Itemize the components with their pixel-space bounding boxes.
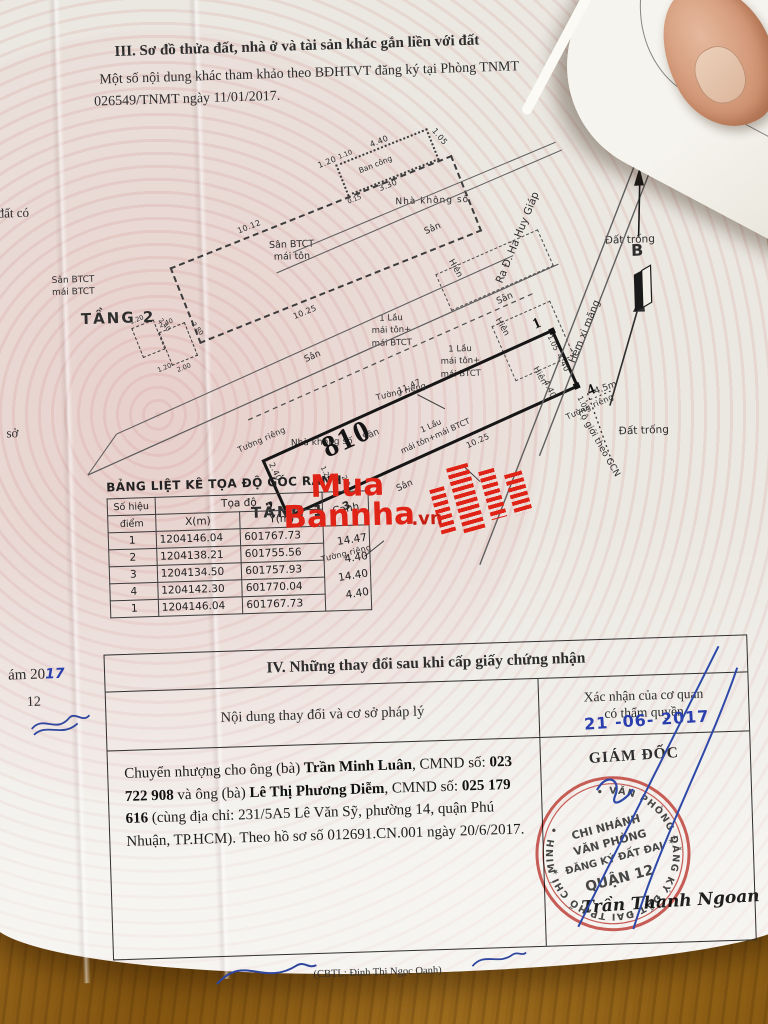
seg: và ông (bà) xyxy=(173,785,249,803)
road-ra-duong-label: Ra Đ. Hà Huy Giáp xyxy=(494,190,542,285)
muabannha-watermark: Mua Bannha .vn xyxy=(282,463,535,561)
photo-of-land-certificate: III. Sơ đồ thửa đất, nhà ở và tài sản kh… xyxy=(0,0,768,1024)
north-label: B xyxy=(631,240,644,259)
lo-gioi-dim: 4.5m xyxy=(593,380,618,397)
section4-table: IV. Những thay đổi sau khi cấp giấy chứn… xyxy=(103,634,756,960)
alley-label: Hẻm xi măng xyxy=(566,298,602,365)
point-id: 2 xyxy=(109,548,157,566)
director-pen-strokes xyxy=(484,637,755,949)
point-id: 1 xyxy=(108,531,156,549)
grantee-name-1: Trần Minh Luân xyxy=(304,757,413,776)
point-id: 3 xyxy=(109,565,157,583)
lo-gioi-label: Lộ giới theo GCN xyxy=(575,408,622,479)
x-value: 1204146.04 xyxy=(158,597,243,617)
point-id: 4 xyxy=(110,582,158,600)
seg: Chuyển nhượng cho ông (bà) xyxy=(124,760,304,782)
seg: Theo hồ sơ số 012691.CN.001 ngày 20/6/20… xyxy=(236,821,525,846)
y-value: 601767.73 xyxy=(243,594,327,614)
col-point-header2: điểm xyxy=(108,514,156,532)
col-point-header1: Số hiệu xyxy=(107,497,155,515)
edge-value-3: 14.40 xyxy=(337,568,369,584)
transfer-paragraph: Chuyển nhượng cho ông (bà) Trần Minh Luâ… xyxy=(124,750,529,853)
seg: , CMND số: xyxy=(384,778,462,796)
seg: , CMND số: xyxy=(412,755,490,773)
point-id: 1 xyxy=(110,599,158,617)
watermark-line2: Bannha xyxy=(283,499,416,534)
edge-value-4: 4.40 xyxy=(345,586,370,601)
thumbnail xyxy=(686,38,755,111)
grantee-name-2: Lê Thị Phương Diễm xyxy=(249,780,384,800)
